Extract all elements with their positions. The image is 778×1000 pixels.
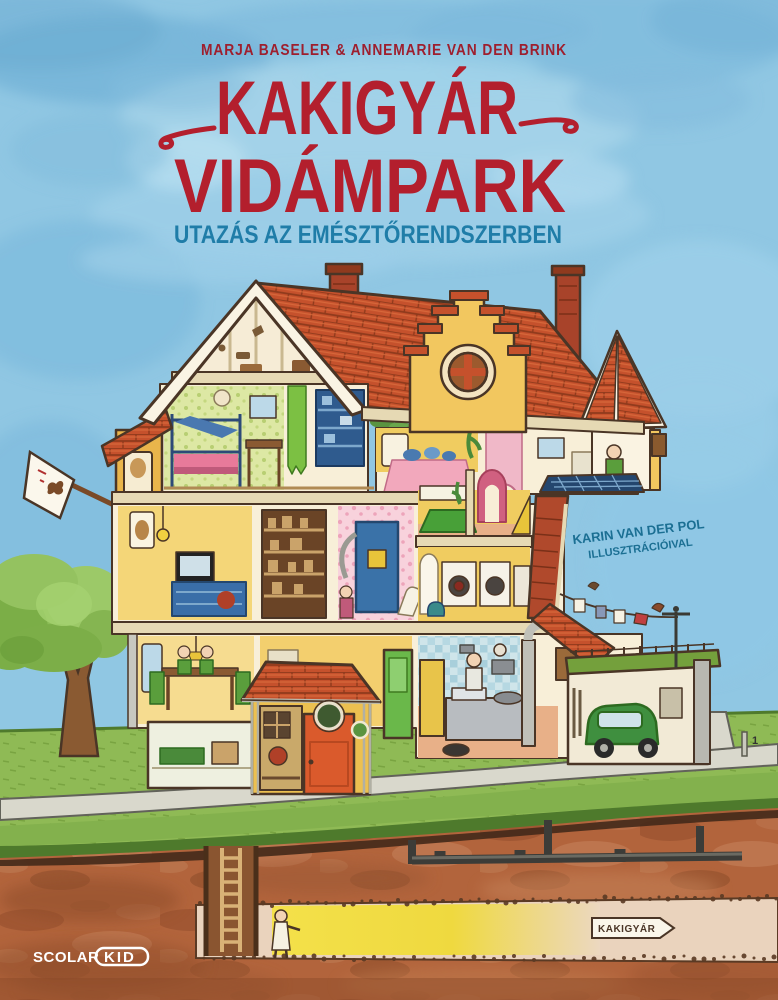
svg-text:VIDÁMPARK: VIDÁMPARK <box>174 144 566 229</box>
svg-text:KID: KID <box>104 949 136 966</box>
svg-text:UTAZÁS AZ EMÉSZTŐRENDSZERBEN: UTAZÁS AZ EMÉSZTŐRENDSZERBEN <box>174 220 562 249</box>
svg-text:KAKIGYÁR: KAKIGYÁR <box>598 922 656 935</box>
svg-text:KAKIGYÁR: KAKIGYÁR <box>216 66 518 151</box>
svg-text:MARJA BASELER & ANNEMARIE VAN: MARJA BASELER & ANNEMARIE VAN DEN BRINK <box>201 42 567 59</box>
svg-text:1: 1 <box>752 735 758 747</box>
svg-text:SCOLAR: SCOLAR <box>33 949 99 966</box>
